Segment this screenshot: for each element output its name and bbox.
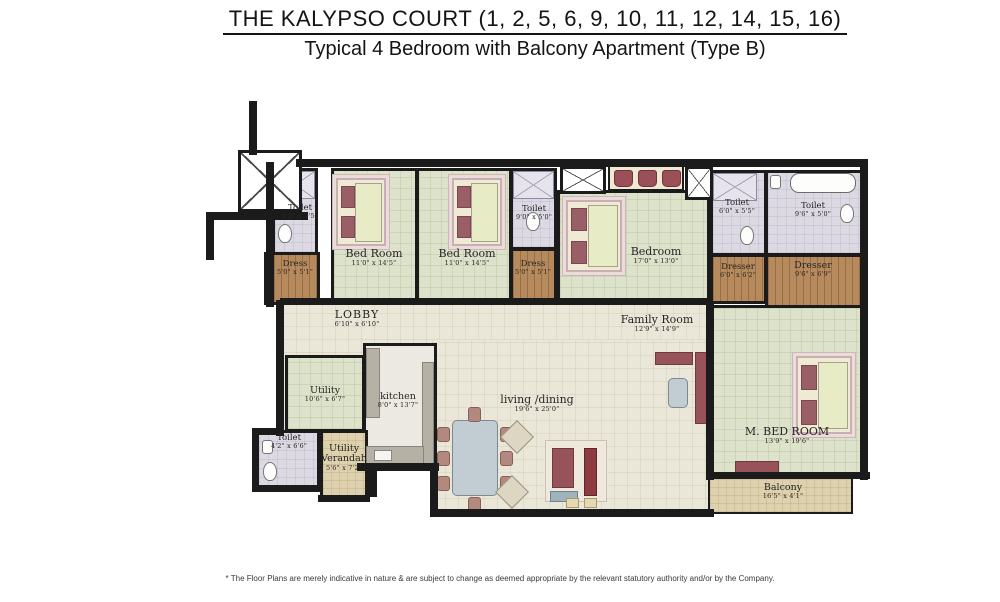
wall-right: [860, 159, 868, 480]
bed-icon: [796, 356, 852, 434]
pillow-icon: [457, 186, 471, 208]
lift-icon: [685, 166, 713, 200]
chair-icon: [500, 451, 513, 466]
wall-left-upper: [266, 162, 274, 307]
room-label-lobby: LOBBY6'10" x 6'10": [335, 309, 380, 328]
wall-balcony-top: [706, 472, 870, 479]
room-label-dress-2: Dress5'0" x 5'1": [515, 260, 551, 276]
clothes-icon: [662, 170, 681, 187]
mattress: [588, 205, 618, 267]
wall-top: [296, 159, 868, 167]
room-label-toilet-3: Toilet6'0" x 5'5": [719, 199, 755, 215]
clothes-icon: [638, 170, 657, 187]
bed-icon: [566, 200, 622, 272]
shaft-icon: [560, 166, 606, 194]
room-label-m-bedroom: M. BED ROOM13'9" x 19'6": [745, 426, 829, 445]
room-label-utility-verandah: Utility Verandah5'6" x 7'2": [315, 444, 373, 472]
room-label-utility: Utility10'6" x 6'7": [305, 386, 345, 404]
room-label-bedroom-1: Bed Room11'0" x 14'5": [345, 248, 402, 267]
sofa-icon: [552, 448, 574, 488]
mattress: [355, 183, 382, 241]
bed-icon: [336, 178, 386, 246]
bed-icon: [452, 178, 502, 246]
cabinet-icon: [584, 448, 597, 496]
wall-mbedroom-left: [706, 302, 714, 480]
wall-entry-vertical: [249, 101, 257, 155]
room-label-family-room: Family Room12'9" x 14'9": [621, 314, 694, 333]
basin-icon: [770, 175, 781, 189]
page-title: THE KALYPSO COURT (1, 2, 5, 6, 9, 10, 11…: [223, 6, 848, 35]
bathtub-icon: [790, 173, 856, 193]
dining-table-icon: [452, 420, 498, 496]
room-label-toilet-5: Toilet4'2" x 6'6": [271, 434, 307, 450]
floor-plan: Toilet9'0" x 5'5" Dress5'0" x 5'1" Bed R…: [0, 0, 1000, 602]
sink-icon: [374, 450, 392, 461]
chair-icon: [468, 407, 481, 422]
room-label-bedroom-2: Bed Room11'0" x 14'5": [438, 248, 495, 267]
room-label-living-dining: living /dining19'6" x 25'0": [500, 394, 573, 413]
wall-corridor-top: [280, 298, 710, 305]
wall-toilet5-bottom: [252, 485, 322, 492]
clothes-icon: [614, 170, 633, 187]
room-label-toilet-4: Toilet9'6" x 5'0": [795, 202, 831, 218]
pillow-icon: [801, 365, 817, 390]
room-label-dress-1: Dress5'0" x 5'1": [277, 260, 313, 276]
room-label-dresser-1: Dresser6'0" x 6'2": [720, 263, 756, 279]
pillow-icon: [571, 208, 587, 231]
coffee-table-icon: [668, 378, 688, 408]
room-label-dresser-2: Dresser9'6" x 6'9": [794, 261, 832, 279]
wc-icon: [263, 462, 277, 481]
wall-entry-stub: [206, 212, 214, 260]
room-label-kitchen: kitchen8'0" x 13'7": [378, 392, 418, 410]
wall-living-bottom: [430, 509, 714, 517]
pillow-icon: [457, 216, 471, 238]
wall-left-middle: [276, 300, 284, 436]
wardrobe-icon: [608, 165, 684, 191]
wc-icon: [740, 226, 754, 245]
room-label-toilet-2: Toilet9'0" x 5'0": [516, 205, 552, 221]
disclaimer-text: * The Floor Plans are merely indicative …: [0, 574, 1000, 583]
mattress: [471, 183, 498, 241]
chair-icon: [437, 476, 450, 491]
stool-icon: [566, 498, 579, 508]
wall-verandah-bottom: [318, 495, 370, 502]
room-label-toilet-1: Toilet9'0" x 5'5": [282, 204, 318, 220]
wc-icon: [278, 224, 292, 243]
shower-icon: [713, 173, 757, 201]
plan-header: THE KALYPSO COURT (1, 2, 5, 6, 9, 10, 11…: [70, 6, 1000, 61]
room-label-balcony: Balcony16'5" x 4'1": [763, 483, 803, 501]
wc-icon: [840, 204, 854, 223]
stool-icon: [584, 498, 597, 508]
mattress: [818, 362, 848, 429]
page-subtitle: Typical 4 Bedroom with Balcony Apartment…: [70, 38, 1000, 61]
pillow-icon: [341, 186, 355, 208]
sofa-icon: [655, 352, 693, 365]
wall-left-lower: [252, 428, 259, 492]
shower-icon: [513, 171, 554, 199]
chair-icon: [437, 427, 450, 442]
pillow-icon: [341, 216, 355, 238]
pillow-icon: [801, 400, 817, 425]
pillow-icon: [571, 241, 587, 264]
room-label-bedroom-3: Bedroom17'0" x 13'0": [631, 246, 682, 265]
